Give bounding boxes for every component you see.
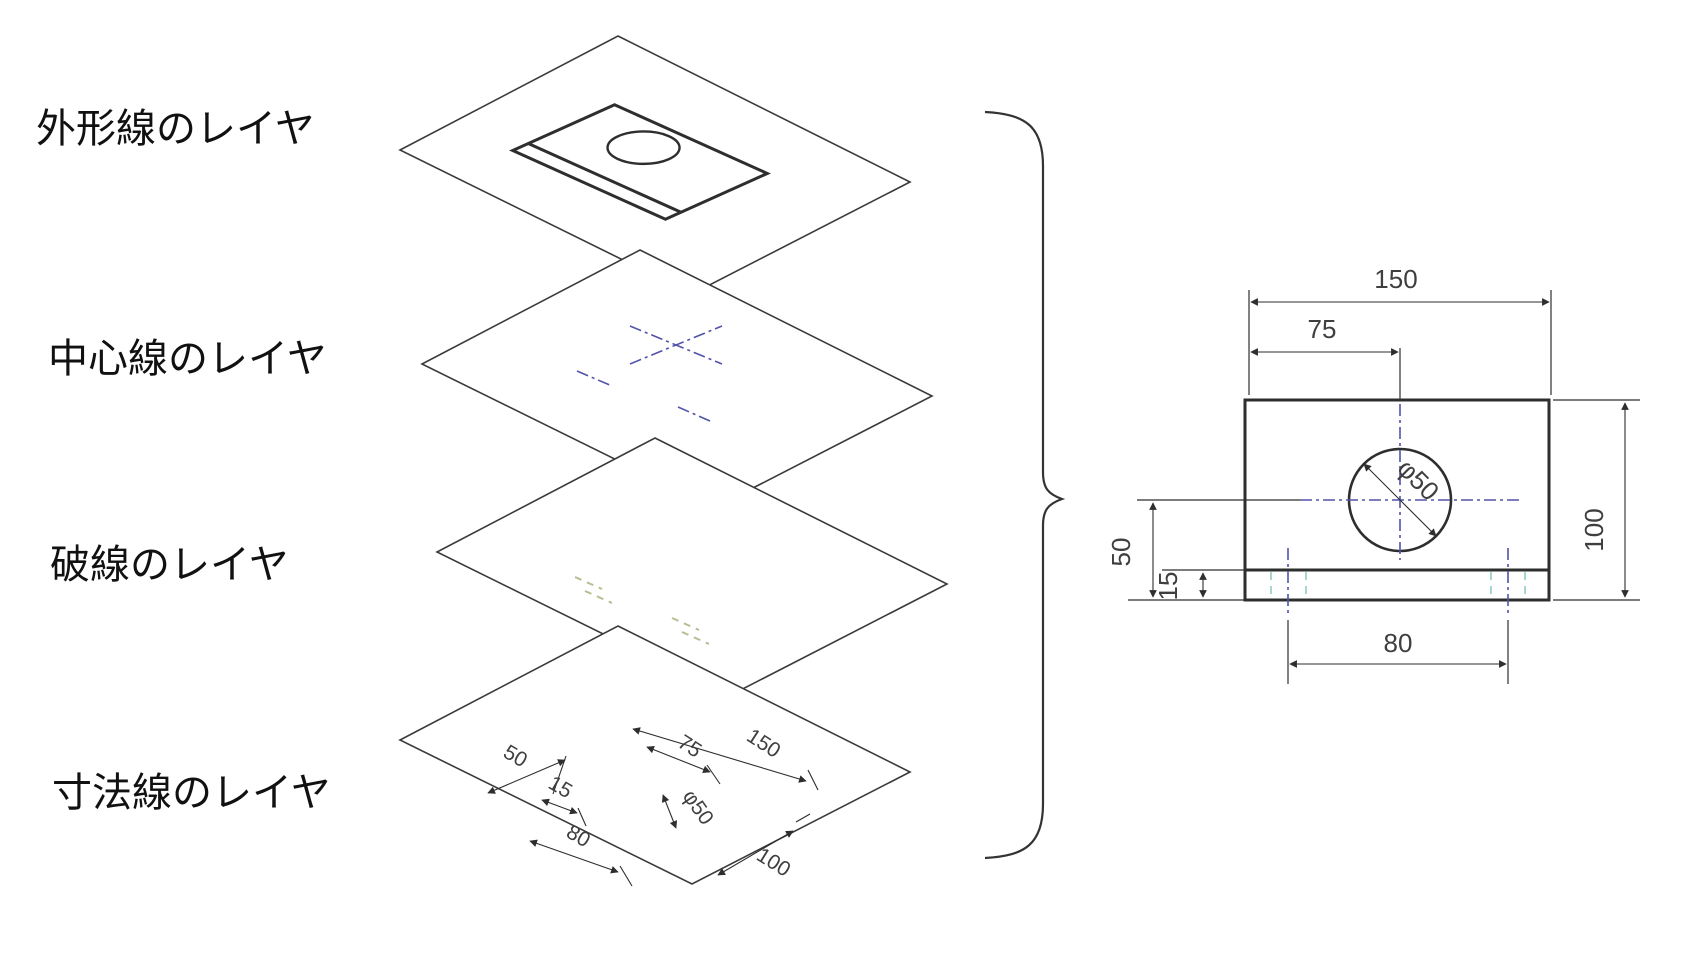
dim-label-15: 15: [1153, 572, 1183, 601]
layer-label-dashed: 破線のレイヤ: [50, 543, 289, 587]
iso-dim-tick-80: [620, 866, 632, 886]
dim-label-75: 75: [1308, 314, 1337, 344]
layer3-plane: [437, 438, 947, 696]
grouping-brace: [985, 112, 1062, 858]
dim-label-100: 100: [1579, 508, 1609, 551]
layer-plane-outline: [400, 36, 910, 294]
layer-label-dimension: 寸法線のレイヤ: [52, 771, 331, 815]
diagram-canvas: 150 75 φ50 100 50 15 80 外形線のレイヤ 中心線のレイヤ …: [0, 0, 1706, 959]
result-drawing: 150 75 100 50 15 80 φ50: [1106, 264, 1640, 684]
layer1-plane: [400, 36, 910, 294]
dim-label-50: 50: [1106, 538, 1136, 567]
layer-plane-dashed: [437, 438, 947, 696]
layer4-plane: [400, 626, 910, 884]
dim-label-80: 80: [1384, 628, 1413, 658]
layer-label-centerline: 中心線のレイヤ: [48, 337, 327, 381]
layer-plane-dimension: 150 75 φ50 100 50 15 80: [400, 626, 910, 886]
dim-label-150: 150: [1374, 264, 1417, 294]
layers-diagram-svg: 150 75 φ50 100 50 15 80 外形線のレイヤ 中心線のレイヤ …: [0, 0, 1706, 959]
layer-label-outline: 外形線のレイヤ: [36, 107, 315, 151]
